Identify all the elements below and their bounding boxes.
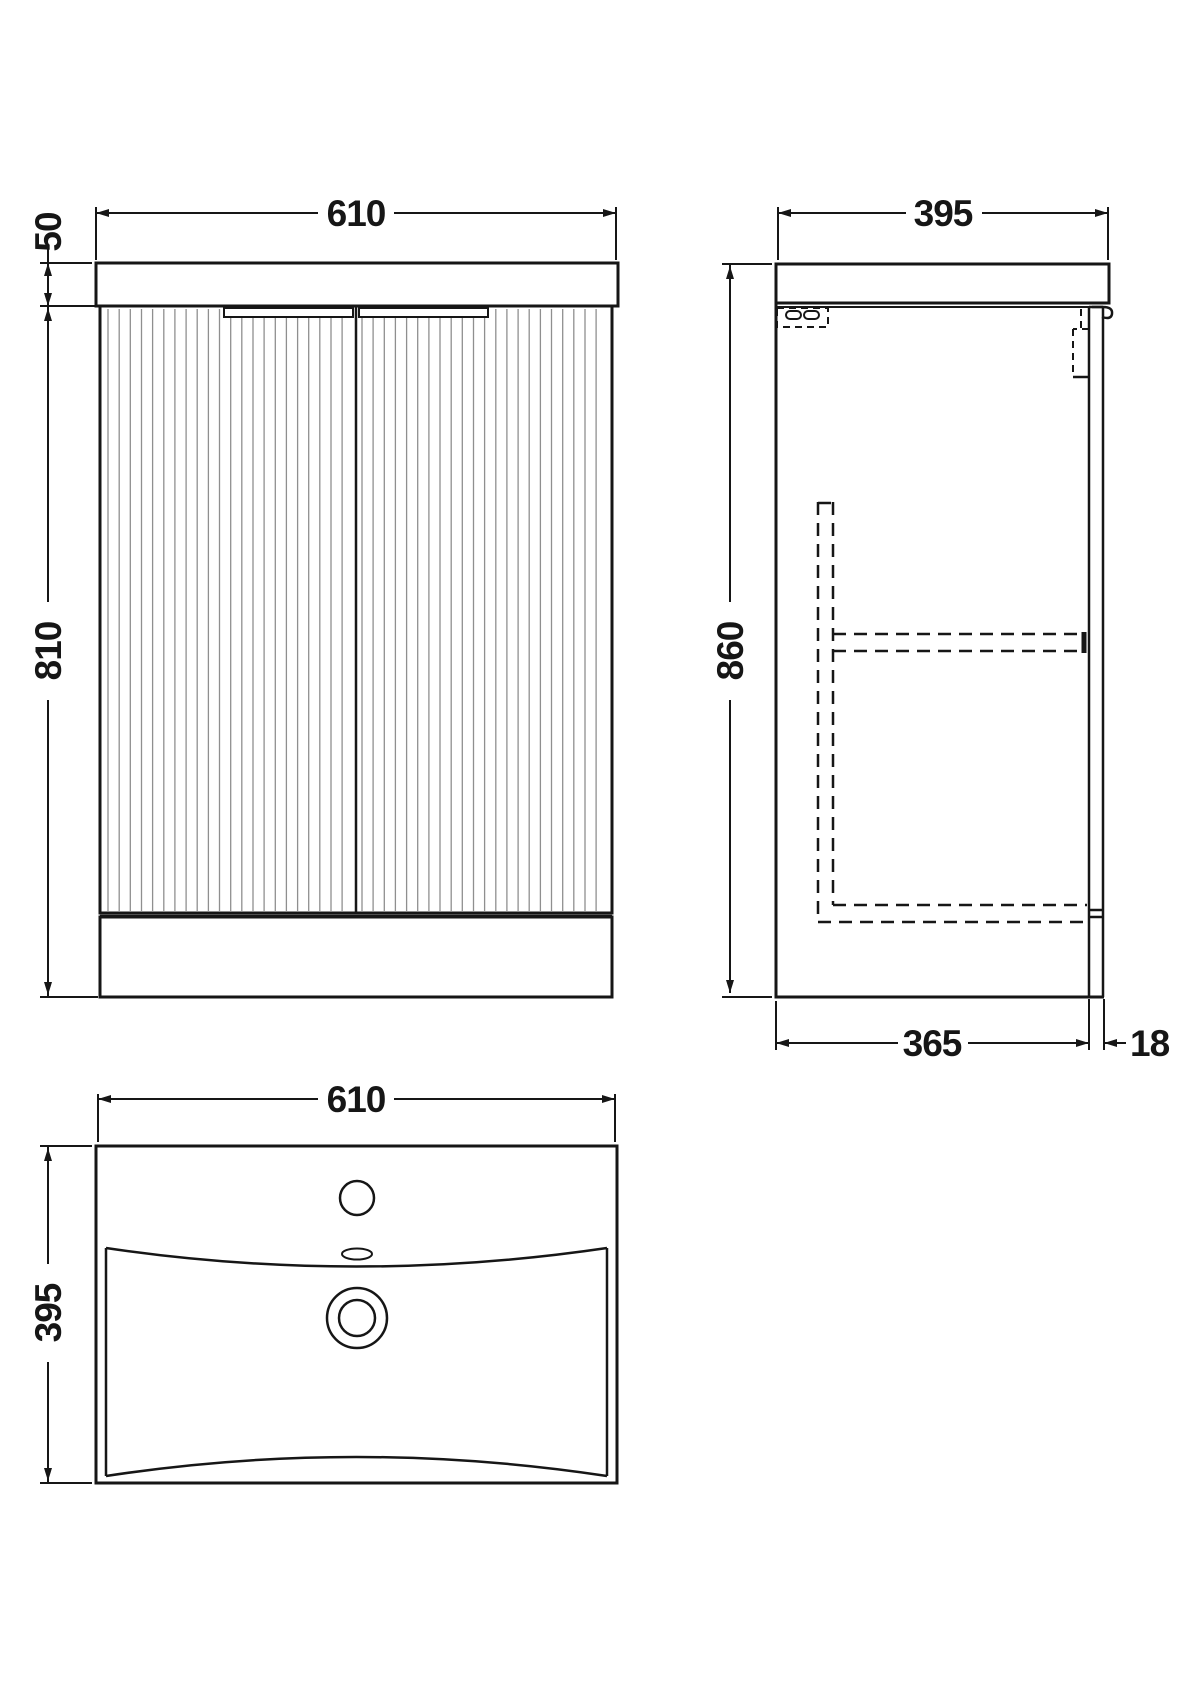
arrowhead-right	[602, 1095, 615, 1103]
waste-outer	[327, 1288, 387, 1348]
side-worktop	[776, 264, 1109, 303]
hidden-bottom-panel	[818, 905, 1104, 922]
arrowhead-down	[726, 980, 734, 993]
side-height-dimension: 860	[710, 264, 772, 997]
shelf-lines	[833, 634, 1082, 651]
front-cabinet-height-label: 810	[28, 621, 69, 680]
plan-width-label: 610	[327, 1079, 386, 1120]
hinge-detail	[1073, 309, 1089, 377]
front-worktop-height-label: 50	[28, 212, 69, 252]
hinge-hidden-lines	[1073, 309, 1089, 376]
arrowhead-left	[98, 1095, 111, 1103]
left-door-handle	[224, 308, 353, 317]
front-worktop-height-dimension: 50	[28, 212, 98, 322]
arrowhead-right	[1076, 1039, 1089, 1047]
back-panel-lines	[818, 502, 833, 922]
side-door-edge	[1089, 307, 1103, 997]
arrowhead-left	[96, 209, 109, 217]
arrowhead-left	[776, 1039, 789, 1047]
front-worktop	[96, 263, 618, 306]
arrowhead-up	[44, 1148, 52, 1161]
side-depth-label: 395	[914, 193, 973, 234]
side-door-thickness-dimension: 18	[1104, 1023, 1170, 1064]
front-plinth	[100, 917, 612, 997]
arrowhead-up	[44, 263, 52, 276]
arrowhead-right	[1095, 209, 1108, 217]
side-door-thickness-label: 18	[1130, 1023, 1170, 1064]
fixing-cam-left	[786, 311, 801, 319]
front-width-label: 610	[327, 193, 386, 234]
side-body-depth-label: 365	[903, 1023, 962, 1064]
side-view: 395 860	[710, 193, 1170, 1064]
plan-depth-dimension: 395	[28, 1146, 92, 1483]
plan-view: 610 395	[28, 1079, 617, 1483]
arrowhead-right	[603, 209, 616, 217]
arrowhead-down	[44, 293, 52, 306]
fixing-outline	[777, 308, 828, 327]
arrowhead-down	[44, 982, 52, 995]
fixing-cam-right	[804, 311, 819, 319]
side-body-depth-dimension: 365	[776, 999, 1104, 1064]
arrowhead-left	[1104, 1039, 1117, 1047]
right-door-handle	[359, 308, 488, 317]
side-height-label: 860	[710, 621, 751, 680]
vanity-technical-drawing: 610 50 810	[0, 0, 1200, 1698]
arrowhead-left	[778, 209, 791, 217]
plan-width-dimension: 610	[98, 1079, 615, 1142]
front-view: 610 50 810	[28, 193, 618, 997]
front-width-dimension: 610	[96, 193, 616, 260]
bottom-panel-lines	[818, 905, 1087, 922]
wall-fixing-detail	[777, 308, 828, 327]
arrowhead-up	[726, 266, 734, 279]
plan-depth-label: 395	[28, 1283, 69, 1342]
arrowhead-down	[44, 1468, 52, 1481]
hidden-back-panel	[818, 502, 833, 922]
hidden-shelf	[833, 632, 1084, 653]
drawing-sheet: 610 50 810	[0, 0, 1200, 1698]
side-depth-dimension: 395	[778, 193, 1108, 260]
front-cabinet-height-dimension: 810	[28, 306, 98, 997]
overflow-slot	[342, 1249, 372, 1260]
arrowhead-up	[44, 308, 52, 321]
